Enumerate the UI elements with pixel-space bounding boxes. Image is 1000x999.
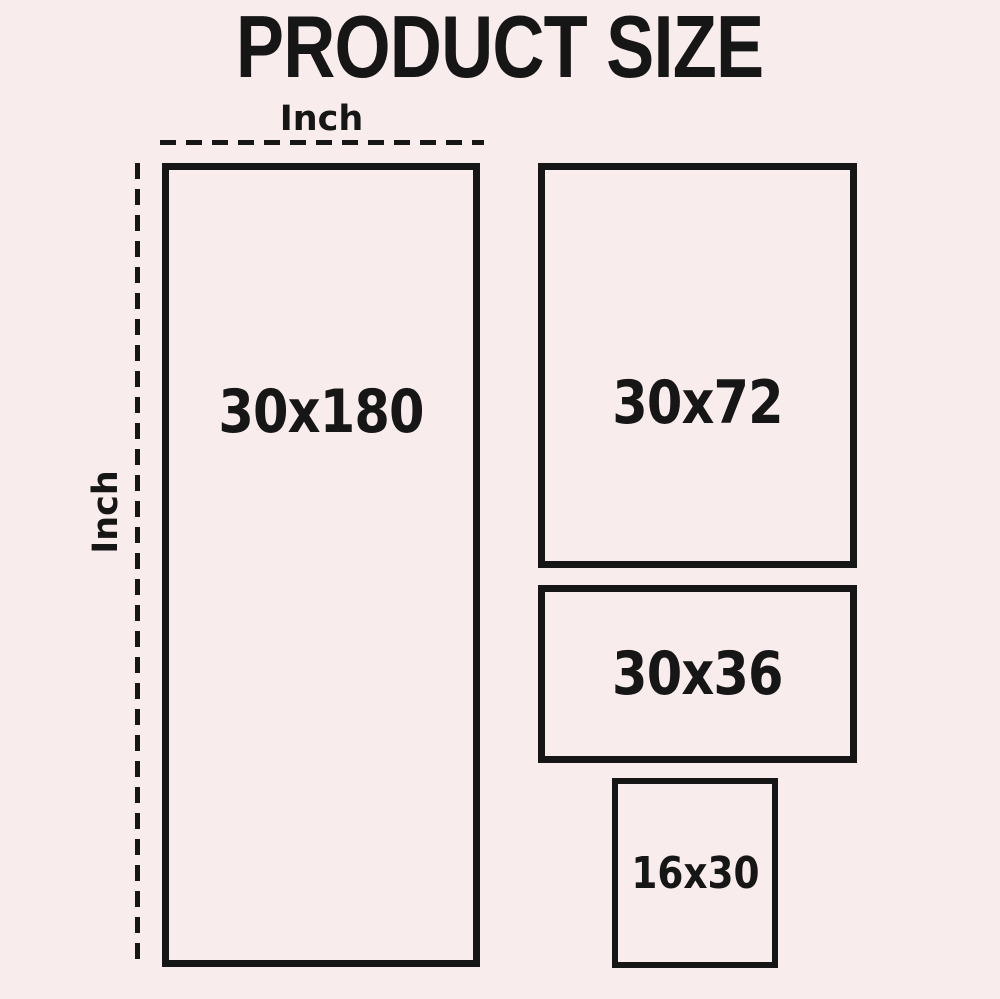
width-unit-label: Inch	[160, 99, 483, 139]
size-label-30x180: 30x180	[192, 377, 450, 447]
size-box-30x180: 30x180	[162, 163, 480, 967]
page-title-text: PRODUCT SIZE	[236, 0, 763, 94]
size-box-30x72: 30x72	[538, 163, 857, 568]
height-dimension-line	[135, 163, 140, 968]
size-label-30x72: 30x72	[568, 368, 827, 438]
size-label-30x36: 30x36	[612, 639, 783, 709]
page-title: PRODUCT SIZE	[0, 0, 1000, 94]
size-box-16x30: 16x30	[612, 778, 778, 968]
size-box-30x36: 30x36	[538, 585, 857, 763]
height-unit-label: Inch	[86, 470, 126, 554]
size-label-16x30: 16x30	[631, 848, 759, 899]
width-dimension-line	[160, 140, 484, 145]
product-size-diagram: PRODUCT SIZE Inch Inch 30x180 30x72 30x3…	[0, 0, 1000, 999]
